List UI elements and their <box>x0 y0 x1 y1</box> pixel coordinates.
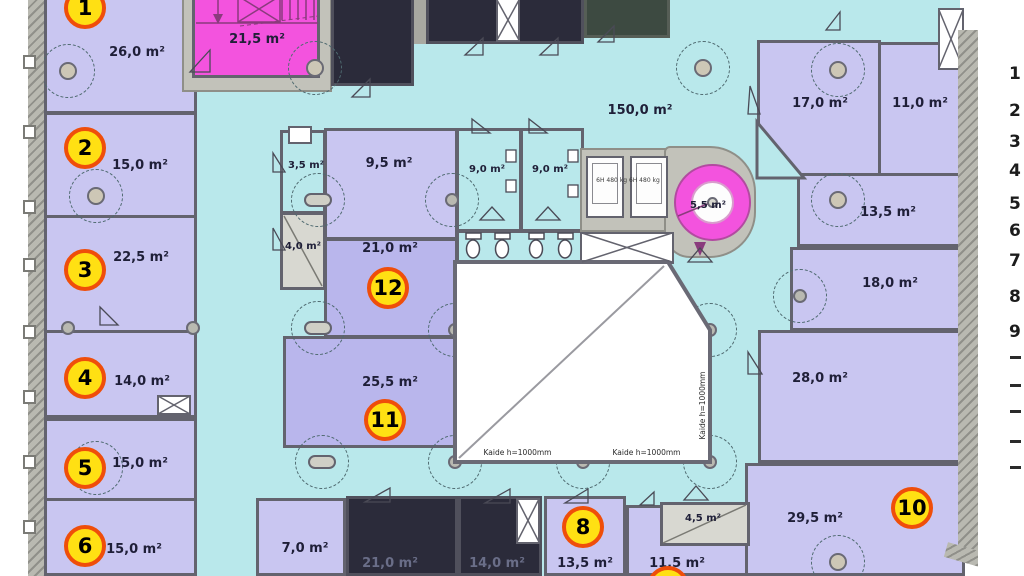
legend-item: 6 <box>1009 221 1021 241</box>
room-badge-11: 11 <box>364 399 406 441</box>
room-e-28 <box>758 330 965 463</box>
column <box>445 193 459 207</box>
lift-car-1 <box>586 156 624 218</box>
ceiling-light <box>829 553 847 571</box>
area-label: 5,5 m² <box>683 200 733 211</box>
column <box>703 455 717 469</box>
left-margin <box>0 0 28 576</box>
legend-item: 4 <box>1009 161 1021 181</box>
lift-capacity-label: 6H 480 kg 6H 480 kg <box>580 177 676 184</box>
room-badge-3: 3 <box>64 249 106 291</box>
legend-item: 9 <box>1009 322 1021 342</box>
ceiling-light <box>87 187 105 205</box>
shaft-s <box>516 498 540 544</box>
ceiling-light <box>829 191 847 209</box>
legend-item: 3 <box>1009 132 1021 152</box>
lift-car-2 <box>630 156 668 218</box>
shaft-top <box>496 0 520 42</box>
legend-item: 5 <box>1009 194 1021 214</box>
wc-stalls <box>456 230 584 264</box>
ceiling-light <box>306 59 324 77</box>
window-tab <box>23 390 36 404</box>
window-tab <box>23 55 36 69</box>
area-label: 9,0 m² <box>525 164 575 175</box>
ceiling-light <box>59 62 77 80</box>
legend-dash <box>1010 356 1021 359</box>
area-label: 14,0 m² <box>462 556 532 571</box>
room-s-7-0 <box>256 498 346 576</box>
column <box>448 455 462 469</box>
floor-plan: 26,0 m² 15,0 m² 22,5 m² 14,0 m² 15,0 m² … <box>0 0 1024 576</box>
area-label: 21,0 m² <box>355 556 425 571</box>
area-label: 13,5 m² <box>550 556 620 571</box>
legend-item: 1 <box>1009 64 1021 84</box>
area-label: 21,5 m² <box>222 32 292 47</box>
exterior-wall-right <box>958 30 978 552</box>
column <box>61 321 75 335</box>
area-label: 29,5 m² <box>780 511 850 526</box>
room-badge-5: 5 <box>64 447 106 489</box>
room-badge-4: 4 <box>64 357 106 399</box>
wall-segment <box>414 0 426 44</box>
area-label: 9,0 m² <box>462 164 512 175</box>
legend-item: 2 <box>1009 101 1021 121</box>
area-label: 17,0 m² <box>785 96 855 111</box>
room-badge-12: 12 <box>367 267 409 309</box>
legend-dash <box>1010 384 1021 387</box>
legend-item: 7 <box>1009 251 1021 271</box>
area-label: 4,5 m² <box>678 513 728 524</box>
door-pill <box>304 321 332 335</box>
window-tab <box>23 125 36 139</box>
legend-item: 8 <box>1009 287 1021 307</box>
door-pill <box>308 455 336 469</box>
area-label: 18,0 m² <box>855 276 925 291</box>
room-badge-8: 8 <box>562 506 604 548</box>
railing-label: Kaide h=1000mm <box>604 448 689 457</box>
area-label: 25,5 m² <box>355 375 425 390</box>
area-label: 15,0 m² <box>99 542 169 557</box>
lift-lobby <box>580 232 674 264</box>
window-tab <box>23 520 36 534</box>
column <box>448 323 462 337</box>
area-label: 7,0 m² <box>270 541 340 556</box>
railing-label-vertical: Kaide h=1000mm <box>698 363 707 448</box>
bath-right <box>520 128 584 232</box>
exterior-wall-left <box>28 0 44 576</box>
room-badge-10: 10 <box>891 487 933 529</box>
ceiling-light <box>694 59 712 77</box>
area-label: 14,0 m² <box>107 374 177 389</box>
railing-label: Kaide h=1000mm <box>475 448 560 457</box>
column <box>186 321 200 335</box>
legend-dash <box>1010 466 1021 469</box>
area-label: 4,0 m² <box>278 241 328 252</box>
legend-dash <box>1010 440 1021 443</box>
area-label: 11,0 m² <box>885 96 955 111</box>
area-label: 22,5 m² <box>106 250 176 265</box>
area-label: 9,5 m² <box>354 156 424 171</box>
door-pill <box>304 193 332 207</box>
area-label: 21,0 m² <box>355 241 425 256</box>
dark-room-top-c <box>584 0 670 38</box>
area-label: 150,0 m² <box>605 103 675 118</box>
window-tab <box>23 200 36 214</box>
ceiling-light <box>829 61 847 79</box>
area-label: 3,5 m² <box>281 160 331 171</box>
window-tab <box>23 258 36 272</box>
area-label: 28,0 m² <box>785 371 855 386</box>
room-badge-6: 6 <box>64 525 106 567</box>
dark-room-top-a <box>331 0 414 86</box>
column <box>576 455 590 469</box>
closet <box>288 126 312 144</box>
column <box>793 289 807 303</box>
area-label: 15,0 m² <box>105 158 175 173</box>
area-label: 26,0 m² <box>102 45 172 60</box>
room-s-4-5 <box>660 502 750 546</box>
area-label: 13,5 m² <box>853 205 923 220</box>
window-tab <box>23 455 36 469</box>
legend-dash <box>1010 410 1021 413</box>
room-badge-2: 2 <box>64 127 106 169</box>
area-label: 15,0 m² <box>105 456 175 471</box>
window-tab <box>23 325 36 339</box>
column <box>703 323 717 337</box>
